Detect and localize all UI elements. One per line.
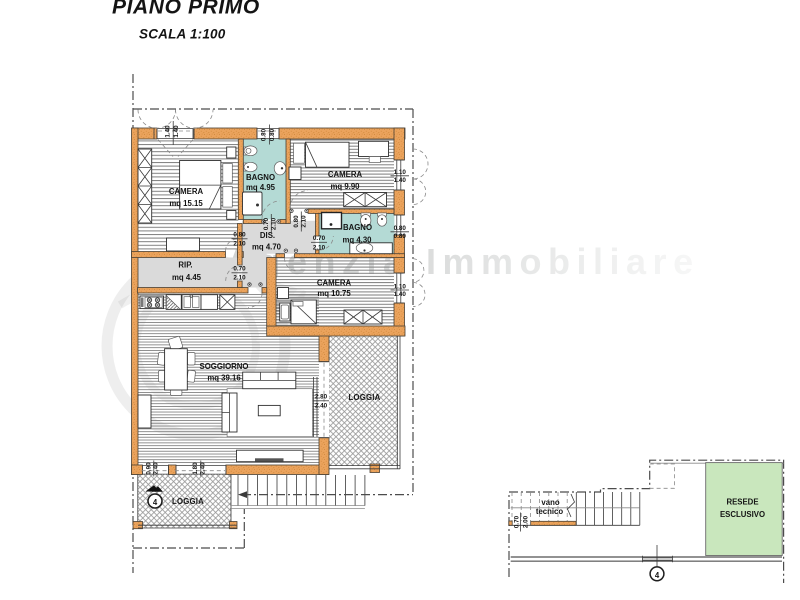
svg-text:0.80: 0.80: [293, 215, 300, 228]
svg-text:mq 4.70: mq 4.70: [252, 243, 282, 252]
svg-text:0.70: 0.70: [263, 217, 270, 230]
svg-text:1.10: 1.10: [394, 169, 407, 176]
svg-text:2.10: 2.10: [233, 275, 246, 282]
svg-text:mq 10.75: mq 10.75: [317, 289, 351, 298]
svg-text:2.10: 2.10: [233, 241, 246, 248]
svg-text:0.80: 0.80: [269, 128, 276, 141]
svg-text:1.10: 1.10: [394, 283, 407, 290]
svg-text:2.40: 2.40: [315, 403, 328, 410]
svg-text:4: 4: [655, 571, 660, 580]
svg-text:0.80: 0.80: [260, 128, 267, 141]
svg-text:SCALA 1:100: SCALA 1:100: [139, 27, 226, 42]
svg-text:0.90: 0.90: [145, 462, 152, 475]
svg-text:RESEDE: RESEDE: [726, 498, 758, 507]
svg-text:PIANO PRIMO: PIANO PRIMO: [112, 0, 260, 19]
svg-text:1.80: 1.80: [192, 462, 199, 475]
svg-text:mq 39.16: mq 39.16: [207, 374, 241, 383]
svg-text:BAGNO: BAGNO: [246, 173, 275, 182]
svg-text:mq 4.45: mq 4.45: [172, 273, 202, 282]
svg-text:1.40: 1.40: [394, 291, 407, 298]
svg-text:BAGNO: BAGNO: [343, 223, 372, 232]
svg-text:0.80: 0.80: [394, 225, 407, 232]
svg-text:mq 9.90: mq 9.90: [330, 182, 360, 191]
svg-text:0.80: 0.80: [233, 232, 246, 239]
svg-text:vano: vano: [541, 498, 559, 507]
svg-text:CAMERA: CAMERA: [317, 279, 352, 288]
svg-text:4: 4: [153, 498, 158, 507]
svg-text:1.40: 1.40: [173, 125, 180, 138]
svg-text:0.70: 0.70: [233, 266, 246, 273]
svg-text:SOGGIORNO: SOGGIORNO: [200, 362, 249, 371]
svg-text:ESCLUSIVO: ESCLUSIVO: [720, 510, 765, 519]
svg-text:mq 15.15: mq 15.15: [169, 199, 203, 208]
svg-text:2.00: 2.00: [523, 515, 530, 528]
svg-text:RIP.: RIP.: [178, 261, 192, 270]
svg-text:0.70: 0.70: [514, 515, 521, 528]
svg-text:1.40: 1.40: [394, 177, 407, 184]
svg-text:mq 4.95: mq 4.95: [246, 183, 276, 192]
svg-text:tecnico: tecnico: [536, 507, 564, 516]
svg-text:LOGGIA: LOGGIA: [349, 393, 381, 402]
svg-text:2.80: 2.80: [315, 394, 328, 401]
svg-text:0.80: 0.80: [394, 233, 407, 240]
svg-text:mq 4.30: mq 4.30: [342, 235, 372, 244]
svg-text:LOGGIA: LOGGIA: [172, 497, 204, 506]
svg-text:DIS.: DIS.: [260, 231, 275, 240]
svg-text:0.70: 0.70: [313, 235, 326, 242]
svg-text:1.40: 1.40: [164, 125, 171, 138]
svg-text:CAMERA: CAMERA: [328, 170, 363, 179]
svg-text:2.10: 2.10: [313, 245, 326, 252]
svg-text:CAMERA: CAMERA: [169, 187, 204, 196]
